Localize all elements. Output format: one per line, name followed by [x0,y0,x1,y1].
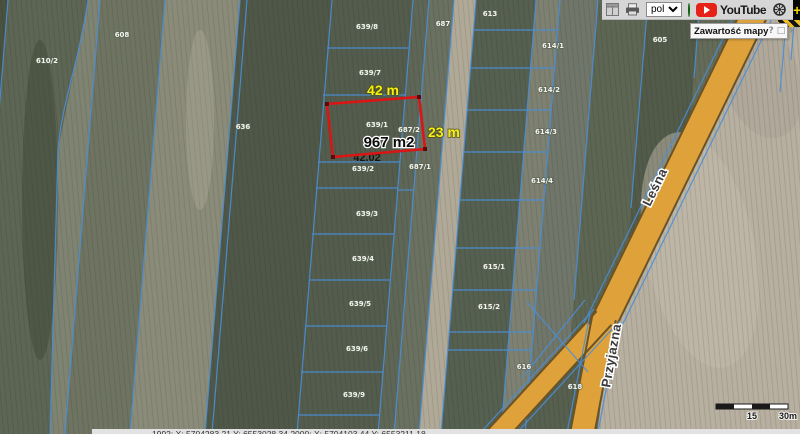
parcel-label: 613 [483,10,498,18]
youtube-play-icon [696,3,717,17]
parcel-label: 618 [568,383,583,391]
scale-end-label: 30m [779,411,797,421]
parcel-label: 639/1 [366,121,388,129]
youtube-button[interactable]: YouTube [696,3,766,17]
parcel-label: 639/6 [346,345,368,353]
measurement-area-label: 967 m2 [364,134,415,151]
parcel-label: 616 [517,363,532,371]
coordinate-readout: 1992: X: 5704283.21 Y: 6553028.34 2000: … [152,429,800,434]
window-layout-icon[interactable] [606,3,619,16]
parcel-label: 636 [236,123,251,131]
panel-help-button[interactable]: ? [768,27,773,36]
globe-icon[interactable] [688,3,690,17]
print-icon[interactable] [625,3,640,16]
youtube-label: YouTube [720,3,766,17]
map-contents-title: Zawartość mapy [694,26,768,37]
measurement-width-label: 42 m [367,82,399,98]
font-increase-button[interactable]: + [793,3,800,17]
settings-wheel-icon[interactable] [772,2,787,17]
parcel-label: 605 [653,36,668,44]
parcel-label: 639/9 [343,391,365,399]
parcel-label: 687 [436,20,451,28]
parcel-label: 639/2 [352,165,374,173]
panel-restore-button[interactable]: □ [777,27,786,36]
parcel-label: 639/3 [356,210,378,218]
parcel-label: 610/2 [36,57,58,65]
accessibility-contrast-panel: + [793,0,800,20]
parcel-label: 639/5 [349,300,371,308]
parcel-label: 687/1 [409,163,431,171]
parcel-label: 639/7 [359,69,381,77]
measurement-height-label: 23 m [428,124,460,140]
parcel-label: 687/2 [398,126,420,134]
parcel-label: 639/4 [352,255,374,263]
coordinate-statusbar: 1992: X: 5704283.21 Y: 6553028.34 2000: … [92,429,800,434]
parcel-label: 615/2 [478,303,500,311]
map-canvas[interactable]: Leśna Przyjazna 610/2608636639/8687639/7… [0,0,800,434]
parcel-label: 614/4 [531,177,553,185]
map-contents-panel: Zawartość mapy ? □ × [690,23,788,39]
map-viewport: Leśna Przyjazna 610/2608636639/8687639/7… [0,0,800,434]
parcel-label: 639/8 [356,23,378,31]
parcel-label: 615/1 [483,263,505,271]
parcel-label: 614/2 [538,86,560,94]
parcel-label: 608 [115,31,130,39]
language-select[interactable]: pol [646,2,682,17]
panel-close-button[interactable]: × [788,27,796,36]
parcel-label: 614/3 [535,128,557,136]
top-toolbar: pol YouTube + [602,0,800,20]
field-strips [0,0,800,434]
scale-mid-label: 15 [747,411,757,421]
parcel-label: 614/1 [542,42,564,50]
